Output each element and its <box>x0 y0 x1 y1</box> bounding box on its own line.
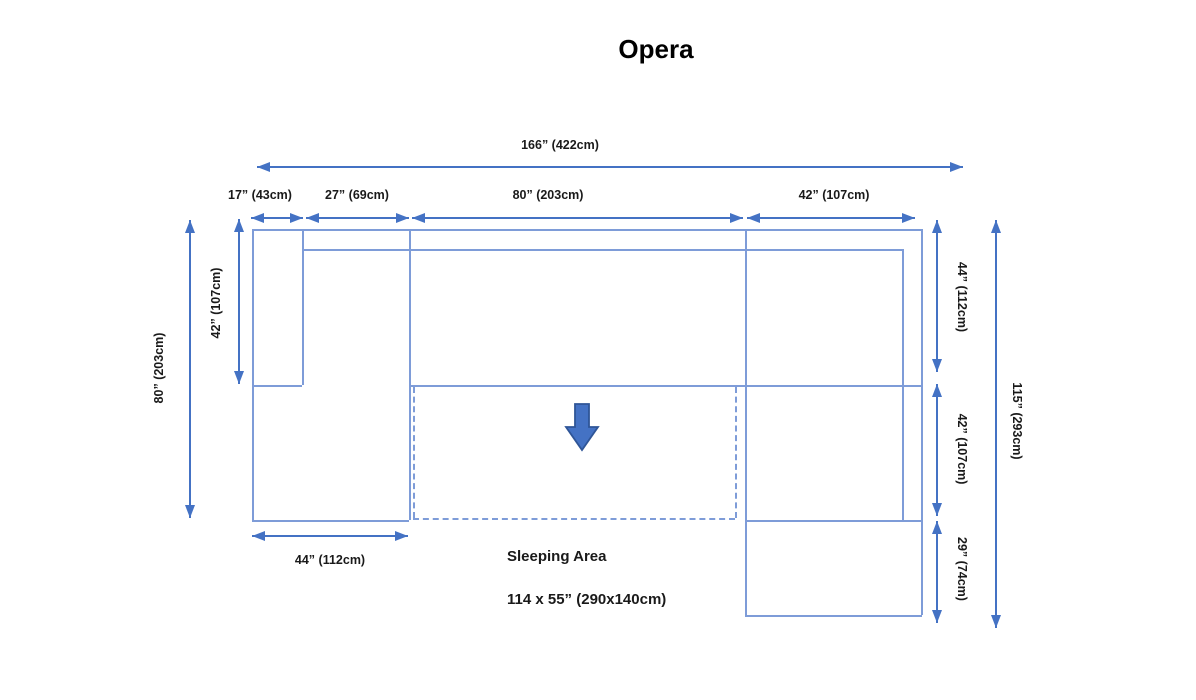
fold-out-down-arrow-icon <box>564 403 601 452</box>
dim-label-right-back-height: 44” (112cm) <box>955 262 969 332</box>
sofa-left-chaise-bottom <box>252 520 409 522</box>
dim-label-right-mid-height: 42” (107cm) <box>955 414 969 485</box>
sofa-left-arm-bottom <box>252 385 302 387</box>
page-title: Opera <box>618 34 693 65</box>
sofa-left-arm-inner <box>302 229 304 385</box>
sleeping-area-dashed-bottom <box>413 518 735 520</box>
dim-label-left-chaise-width: 27” (69cm) <box>325 188 389 202</box>
dim-arrow-left-arm-width <box>251 217 303 219</box>
dim-arrow-total-width <box>257 166 963 168</box>
dim-label-right-width: 42” (107cm) <box>799 188 870 202</box>
sofa-backrest-line <box>302 249 902 251</box>
sleeping-area-label: Sleeping Area <box>507 548 606 565</box>
dim-arrow-left-arm-height <box>238 219 240 384</box>
dim-arrow-right-mid-height <box>936 384 938 516</box>
sofa-right-chaise-bottom <box>745 615 922 617</box>
dim-arrow-right-chaise-height <box>936 521 938 623</box>
sleeping-area-size: 114 x 55” (290x140cm) <box>507 591 666 608</box>
dim-label-left-total-height: 80” (203cm) <box>152 333 166 404</box>
sofa-left-chaise-right-edge <box>409 229 411 520</box>
sofa-right-edge <box>921 229 923 615</box>
dim-arrow-left-chaise-width <box>306 217 409 219</box>
sleeping-area-dashed-right <box>735 387 737 518</box>
sofa-seat-front-line <box>409 385 922 387</box>
dim-arrow-left-total-height <box>189 220 191 518</box>
sofa-center-right-divider <box>745 229 747 615</box>
dim-label-total-height: 115” (293cm) <box>1010 382 1024 459</box>
dim-label-total-width: 166” (422cm) <box>521 138 599 152</box>
dim-arrow-right-back-height <box>936 220 938 372</box>
dim-label-center-width: 80” (203cm) <box>513 188 584 202</box>
sleeping-area-dashed-left <box>413 387 415 518</box>
dim-label-right-chaise-height: 29” (74cm) <box>955 537 969 601</box>
dim-arrow-bottom-chaise-width <box>252 535 408 537</box>
dim-label-left-arm-height: 42” (107cm) <box>209 268 223 339</box>
dim-arrow-center-width <box>412 217 743 219</box>
floorplan-diagram: Opera 166” (422cm) 17” (43cm) 27” (69cm)… <box>0 0 1196 700</box>
sofa-left-edge <box>252 229 254 520</box>
sofa-top-edge <box>252 229 922 231</box>
dim-arrow-total-height <box>995 220 997 628</box>
sofa-right-arm-inner <box>902 249 904 520</box>
sofa-right-section-divider <box>745 520 922 522</box>
dim-label-bottom-chaise-width: 44” (112cm) <box>295 553 365 567</box>
dim-arrow-right-width <box>747 217 915 219</box>
dim-label-left-arm-width: 17” (43cm) <box>228 188 292 202</box>
